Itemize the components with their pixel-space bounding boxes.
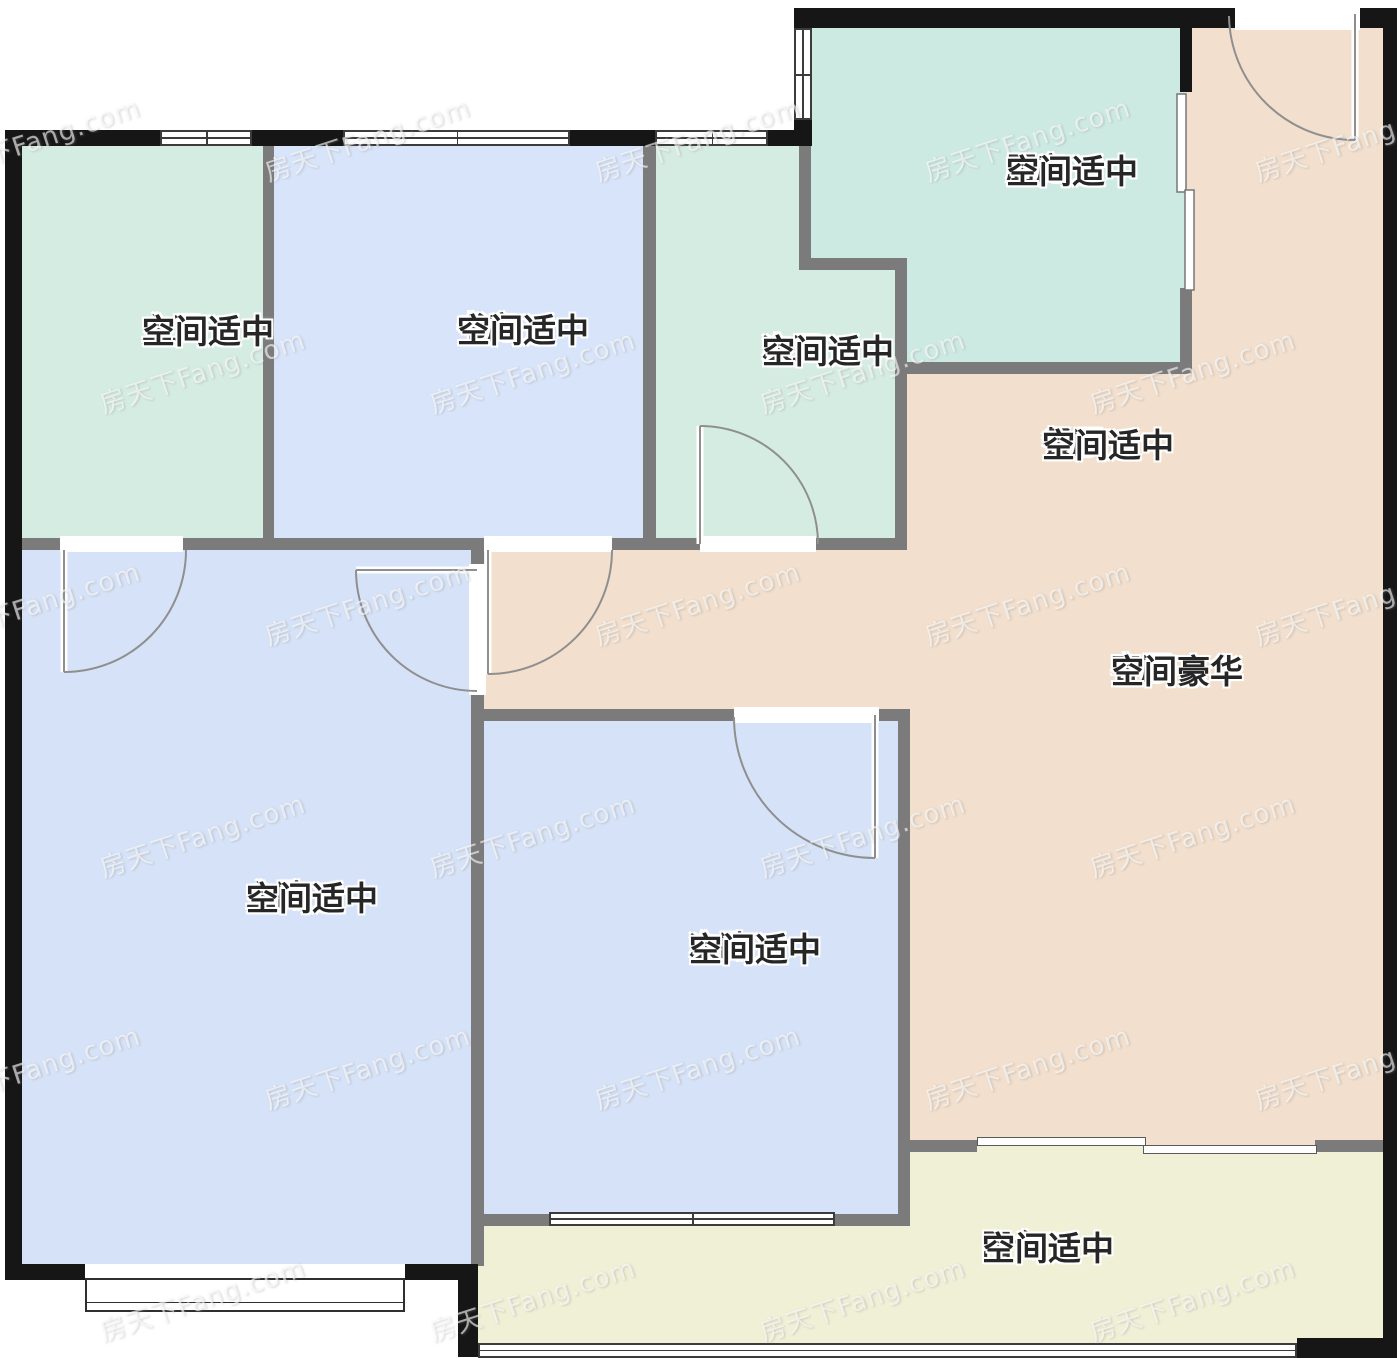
room-grade: 空间适中 [246,879,378,919]
watermark-text: 房天下Fang.com [755,1248,970,1349]
watermark-text: 房天下Fang.com [1250,88,1400,189]
room-grade: 空间适中 [762,332,894,372]
watermark-text: 房天下Fang.com [260,552,475,653]
watermark-text: 房天下Fang.com [1085,1248,1300,1349]
watermark-text: 房天下Fang.com [590,88,805,189]
room-grade: 空间适中 [982,1229,1114,1269]
watermark-text: 房天下Fang.com [920,552,1135,653]
room-grade: 空间适中 [1042,426,1174,466]
watermark-text: 房天下Fang.com [95,1248,310,1349]
room-grade: 空间豪华 [1111,652,1243,692]
watermark-text: 房天下Fang.com [0,88,145,189]
watermark-text: 房天下Fang.com [0,552,145,653]
watermark-text: 房天下Fang.com [590,1016,805,1117]
room-grade: 空间适中 [457,311,589,351]
watermark-text: 房天下Fang.com [755,784,970,885]
watermark-text: 房天下Fang.com [1085,784,1300,885]
watermark-text: 房天下Fang.com [425,784,640,885]
watermark-text: 房天下Fang.com [1085,320,1300,421]
room-grade: 空间适中 [142,312,274,352]
watermark-text: 房天下Fang.com [1250,1016,1400,1117]
watermark-text: 房天下Fang.com [260,88,475,189]
watermark-text: 房天下Fang.com [1250,552,1400,653]
floorplan: 房天下Fang.com房天下Fang.com房天下Fang.com房天下Fang… [0,0,1400,1358]
watermark-text: 房天下Fang.com [260,1016,475,1117]
watermark-text: 房天下Fang.com [95,784,310,885]
watermark-text: 房天下Fang.com [920,1016,1135,1117]
watermark-text: 房天下Fang.com [590,552,805,653]
room-grade: 空间适中 [689,930,821,970]
watermark-text: 房天下Fang.com [0,1016,145,1117]
watermark-text: 房天下Fang.com [425,1248,640,1349]
room-grade: 空间适中 [1006,152,1138,192]
